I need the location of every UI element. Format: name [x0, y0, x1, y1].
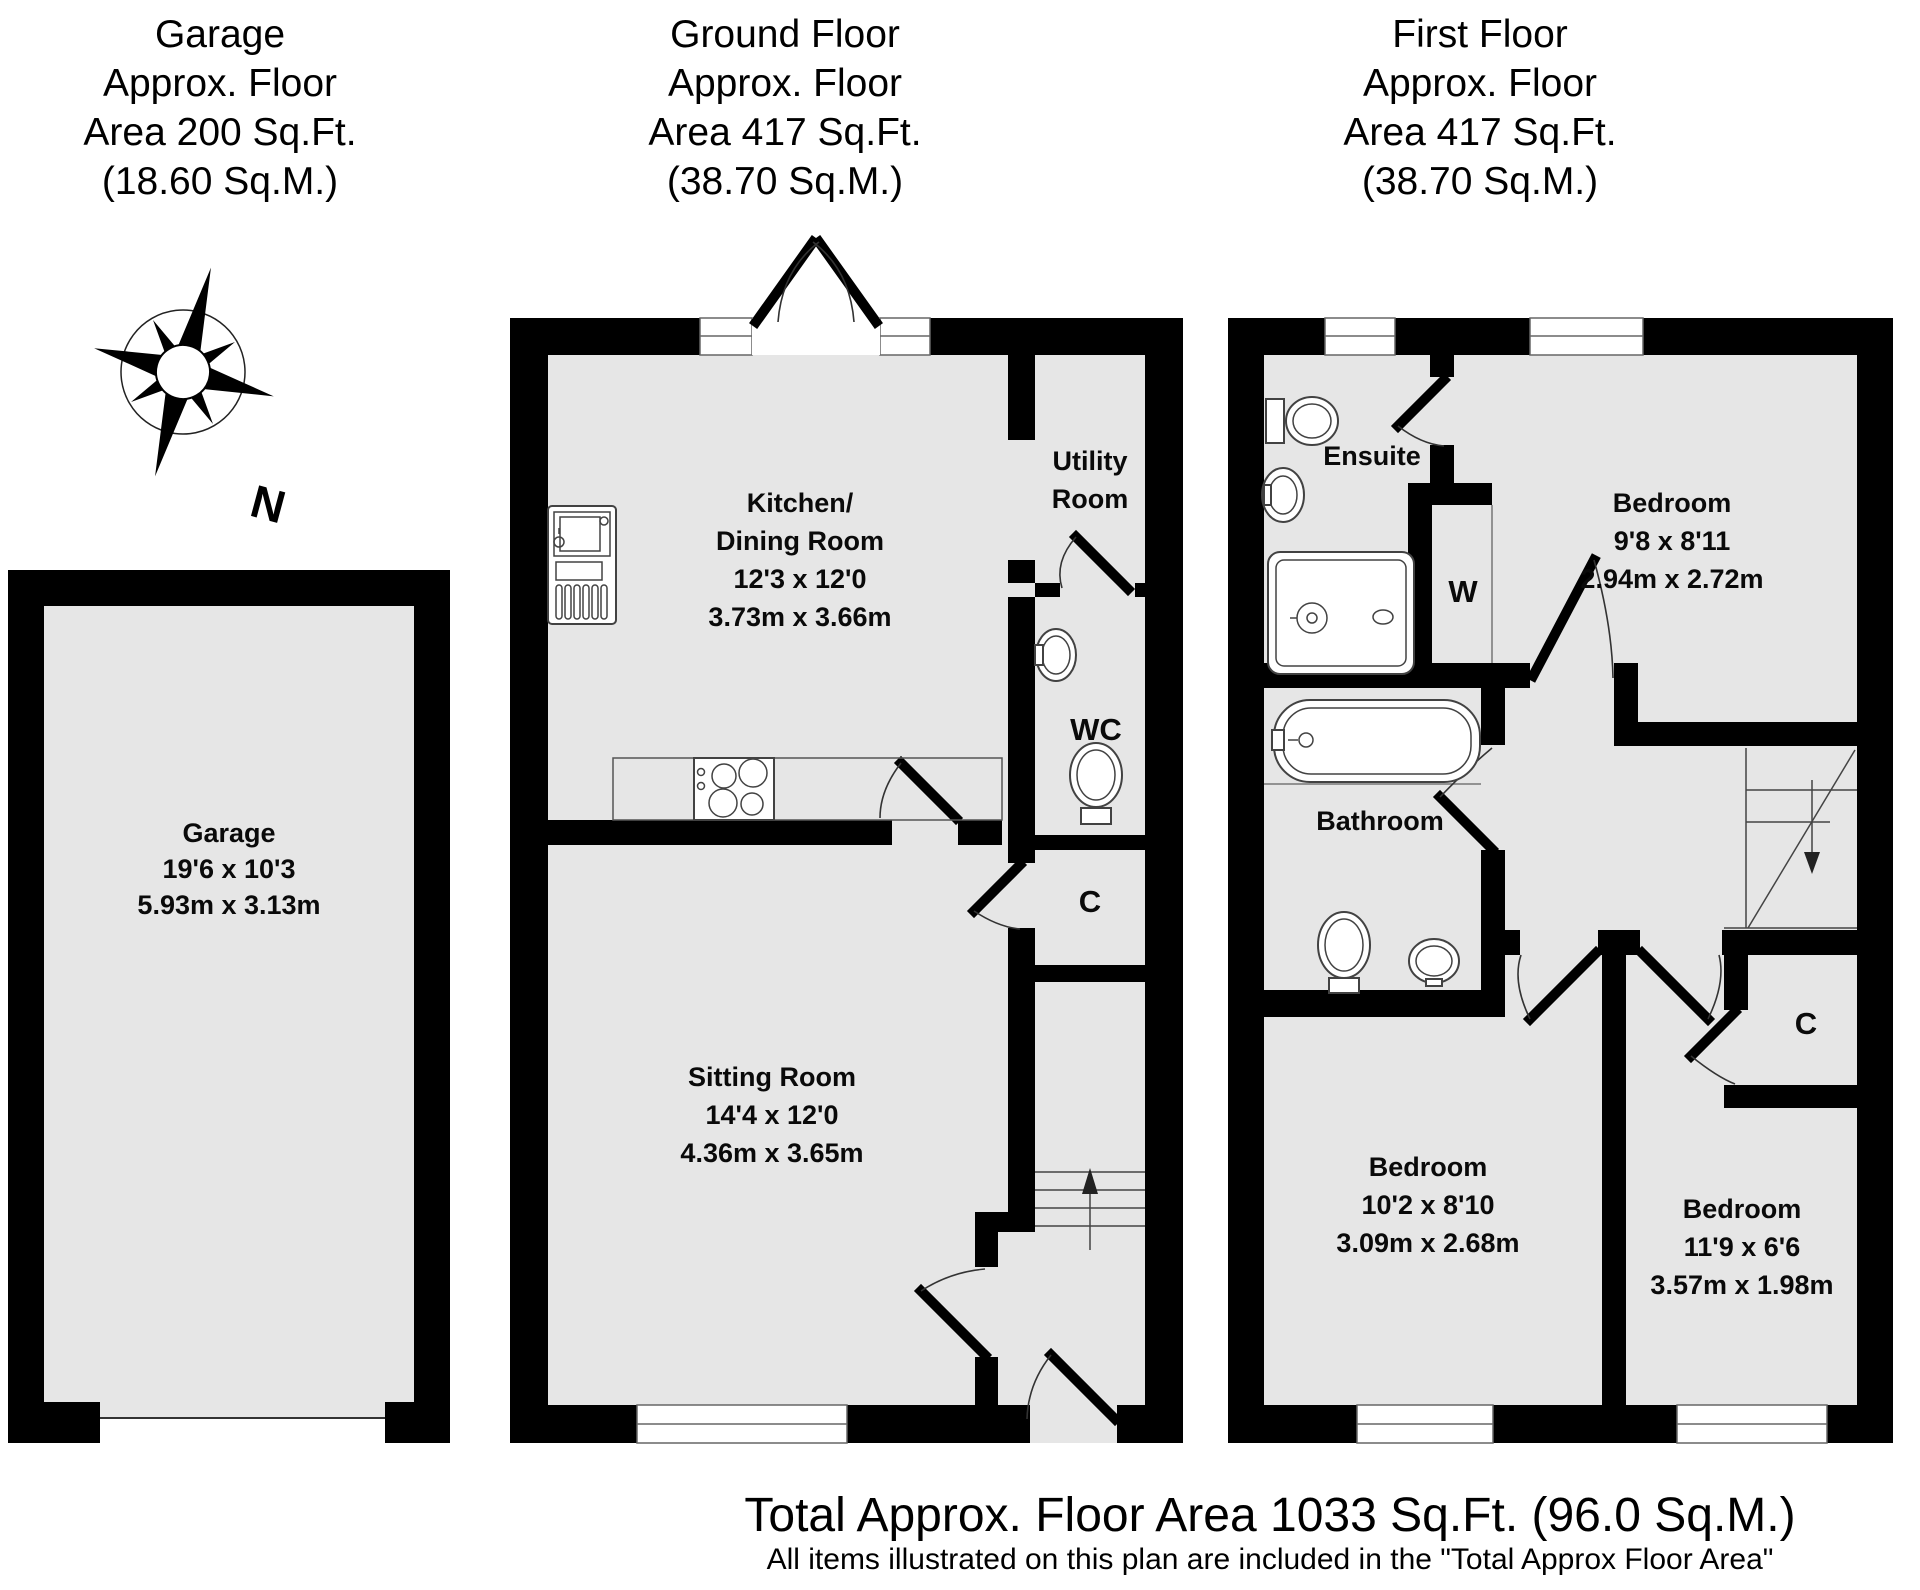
sitting-dims-metric: 4.36m x 3.65m [680, 1138, 863, 1168]
window [637, 1405, 847, 1443]
compass-north-label: N [245, 475, 291, 534]
room-label-bathroom: Bathroom [1316, 806, 1444, 836]
window [1357, 1405, 1493, 1443]
garage-name: Garage [182, 818, 275, 848]
room-label-ensuite: Ensuite [1323, 441, 1421, 471]
bedroom1-name: Bedroom [1613, 488, 1732, 518]
compass-rose-icon: N [66, 244, 302, 534]
bedroom3-dims-metric: 3.57m x 1.98m [1650, 1270, 1833, 1300]
room-label-wc: WC [1070, 712, 1122, 747]
bedroom1-dims-metric: 2.94m x 2.72m [1580, 564, 1763, 594]
utility-name-1: Utility [1052, 446, 1127, 476]
bedroom2-name: Bedroom [1369, 1152, 1488, 1182]
window [1677, 1405, 1827, 1443]
bedroom3-name: Bedroom [1683, 1194, 1802, 1224]
sitting-dims-imperial: 14'4 x 12'0 [706, 1100, 839, 1130]
bath-icon [1272, 700, 1480, 782]
bedroom3-dims-imperial: 11'9 x 6'6 [1684, 1232, 1800, 1262]
garage-dims-metric: 5.93m x 3.13m [137, 890, 320, 920]
first-floor-plan: Ensuite W Bedroom 9'8 x 8'11 2.94m x 2.7… [1228, 318, 1893, 1443]
hob-icon [694, 758, 774, 820]
ground-floor-plan: Kitchen/ Dining Room 12'3 x 12'0 3.73m x… [510, 242, 1183, 1443]
floorplan-page: Garage Approx. Floor Area 200 Sq.Ft. (18… [0, 0, 1920, 1590]
sitting-name: Sitting Room [688, 1062, 856, 1092]
kitchen-name-2: Dining Room [716, 526, 884, 556]
room-label-wardrobe: W [1448, 574, 1478, 609]
window [880, 318, 930, 355]
window [1325, 318, 1395, 355]
total-floor-area-text: Total Approx. Floor Area 1033 Sq.Ft. (96… [620, 1488, 1920, 1543]
room-label-sitting-room: Sitting Room 14'4 x 12'0 4.36m x 3.65m [680, 1062, 863, 1168]
garage-dims-imperial: 19'6 x 10'3 [163, 854, 296, 884]
floorplan-drawing: N Garage 19'6 x 10'3 5.93m x 3.13m [0, 0, 1920, 1590]
kitchen-dims-metric: 3.73m x 3.66m [708, 602, 891, 632]
sink-icon [1035, 629, 1076, 681]
toilet-icon [1266, 397, 1338, 445]
disclaimer-text: All items illustrated on this plan are i… [620, 1543, 1920, 1577]
room-label-cupboard-first: C [1795, 1006, 1817, 1041]
bedroom1-dims-imperial: 9'8 x 8'11 [1614, 526, 1730, 556]
kitchen-name-1: Kitchen/ [747, 488, 854, 518]
shower-icon [1268, 552, 1414, 674]
garage-floor [44, 606, 414, 1418]
garage-plan: Garage 19'6 x 10'3 5.93m x 3.13m [8, 570, 450, 1443]
window [1530, 318, 1643, 355]
utility-name-2: Room [1052, 484, 1129, 514]
kitchen-dims-imperial: 12'3 x 12'0 [734, 564, 867, 594]
sink-icon [1262, 468, 1304, 522]
french-doors [752, 242, 880, 355]
window [700, 318, 752, 355]
bedroom2-dims-imperial: 10'2 x 8'10 [1362, 1190, 1495, 1220]
room-label-cupboard-ground: C [1079, 884, 1101, 919]
kitchen-sink-icon [548, 506, 616, 624]
bedroom2-dims-metric: 3.09m x 2.68m [1336, 1228, 1519, 1258]
